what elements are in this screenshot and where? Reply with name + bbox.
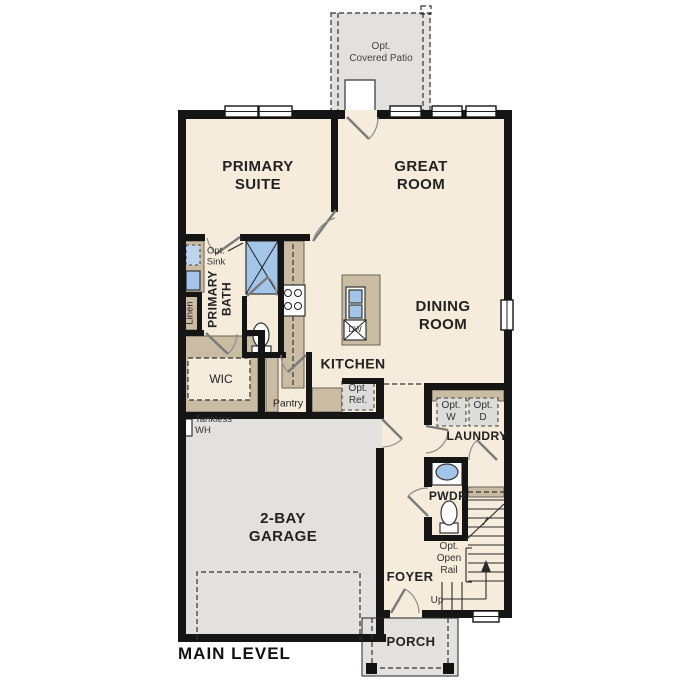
label-wic: WIC [209,372,232,386]
label-garage: 2-BAY GARAGE [249,510,317,546]
label-tankless-wh: Tankless WH [195,414,232,437]
wall-bath-kitchen [278,241,284,358]
label-porch: PORCH [387,634,436,650]
shower [246,241,278,294]
powder-sink [432,460,462,485]
label-pantry: Pantry [273,398,303,411]
wall-pantry-right [306,352,312,412]
label-primary-bath: PRIMARY BATH [206,270,235,328]
label-dining-room: DINING ROOM [416,298,471,334]
wall-suite-bottom-b [240,234,310,241]
label-opt-dryer: Opt. D [474,400,493,424]
label-linen: Linen [184,301,195,324]
island-sink [346,287,365,320]
wall-suite-bottom-a [178,234,205,241]
label-foyer: FOYER [387,569,434,585]
label-patio: Opt. Covered Patio [349,41,412,65]
wall-linen-right [197,292,202,330]
label-dishwasher: DW [348,325,361,335]
porch-post-left [366,663,377,674]
label-laundry: LAUNDRY [446,429,507,443]
patio-stoop [345,80,375,112]
wall-laundry-left [424,383,432,425]
bath-sink [186,271,200,290]
wall-wic-pantry [258,330,265,412]
wall-powder-left-a [424,463,432,487]
powder-toilet [440,501,458,533]
wall-bath-wic-a [178,330,204,336]
wall-right [504,110,512,618]
wall-suite-great [331,112,338,212]
wall-laundry-bottom [424,457,468,463]
front-door-gap [390,610,422,618]
wall-left [178,110,186,642]
opt-sink-box [186,245,200,265]
label-up: Up [431,595,444,607]
floor-plan-drawing [0,0,687,687]
label-opt-sink: Opt. Sink [207,246,225,269]
label-powder: PWDR [429,489,467,503]
wall-garage-right-lower [376,448,384,642]
patio-door-gap [345,110,377,119]
kitchen-counter-lower [312,388,342,412]
wall-laundry-top [428,383,512,390]
wall-garage-bottom [178,634,386,642]
page-title: MAIN LEVEL [178,644,291,664]
label-opt-washer: Opt. W [442,400,461,424]
porch-post-right [443,663,454,674]
stove [281,285,305,316]
wall-toilet-nook [242,296,247,352]
wall-bath-wic-b [244,330,263,336]
label-opt-open-rail: Opt. Open Rail [437,541,461,577]
label-kitchen: KITCHEN [320,356,385,373]
label-opt-ref: Opt. Ref. [349,383,368,407]
label-great-room: GREAT ROOM [394,158,447,194]
label-primary-suite: PRIMARY SUITE [222,158,293,194]
floor-plan: PRIMARY SUITE GREAT ROOM DINING ROOM KIT… [0,0,687,687]
